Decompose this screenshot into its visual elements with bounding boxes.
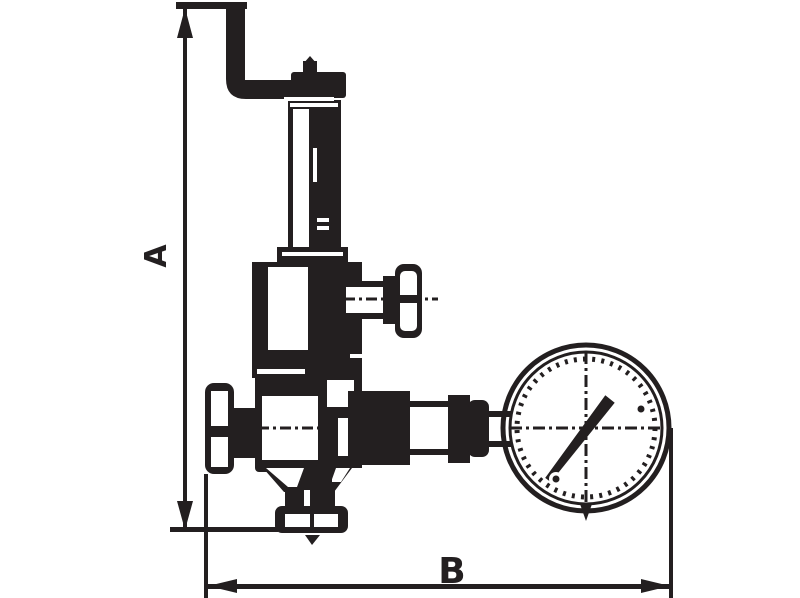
dimension-b-right-extension-line <box>669 428 673 598</box>
outlet-union-face <box>410 407 448 449</box>
spring-housing <box>284 97 341 251</box>
inlet-pipe-tube <box>226 3 297 99</box>
drain-neck-highlight <box>304 490 310 508</box>
drain-union-face-left <box>285 514 310 527</box>
bottom-drain-fitting <box>256 460 358 545</box>
dimension-a-arrow-up-icon <box>177 8 193 38</box>
spring-coil-highlight-2 <box>317 218 329 222</box>
handwheel-face-upper <box>211 391 228 426</box>
outlet-union-nut <box>448 395 470 463</box>
top-cap <box>291 56 346 98</box>
dimension-b-arrow-right-icon <box>641 579 670 593</box>
gauge-dial-dot <box>638 406 645 413</box>
dimension-b-arrow-left-icon <box>208 579 237 593</box>
bonnet-flange <box>277 247 348 262</box>
valve-body-face <box>262 396 318 466</box>
spring-coil-highlight-3 <box>317 226 329 230</box>
dimension-a-label: A <box>139 244 174 268</box>
outlet-neck-top <box>487 411 511 417</box>
cap-separation-highlight <box>284 97 334 101</box>
drawing-canvas: A B <box>0 0 800 598</box>
gauge-needle <box>545 395 615 482</box>
spring-housing-slot-highlight <box>293 109 309 248</box>
drain-taper-column <box>308 460 332 492</box>
bonnet-flange-highlight <box>282 252 343 256</box>
dimension-a-line <box>183 8 187 528</box>
drain-flow-arrow-icon <box>305 535 320 545</box>
body-top-flange-highlight <box>257 369 305 374</box>
dimension-b-left-extension-line <box>204 474 208 598</box>
spring-bonnet-face <box>268 267 308 350</box>
gauge-needle-hub-dot <box>553 476 560 483</box>
handwheel <box>205 383 256 474</box>
cap-body <box>291 72 346 98</box>
pressure-gauge <box>503 345 669 521</box>
dimension-a-arrow-down-icon <box>177 501 193 530</box>
inlet-pipe <box>226 3 297 99</box>
outlet-connection <box>348 391 511 465</box>
valve-technical-drawing: A B <box>0 0 800 598</box>
spring-coil-highlight-1 <box>313 148 317 182</box>
outlet-adapter <box>468 400 489 457</box>
handwheel-face-lower <box>211 437 228 467</box>
handwheel-stem <box>232 408 256 458</box>
dimension-b-label: B <box>438 551 465 592</box>
drain-union-face-right <box>314 514 338 527</box>
spring-housing-groove <box>290 103 338 107</box>
dimension-a-bottom-extension-line <box>170 527 278 532</box>
outlet-flange-block <box>348 391 410 465</box>
